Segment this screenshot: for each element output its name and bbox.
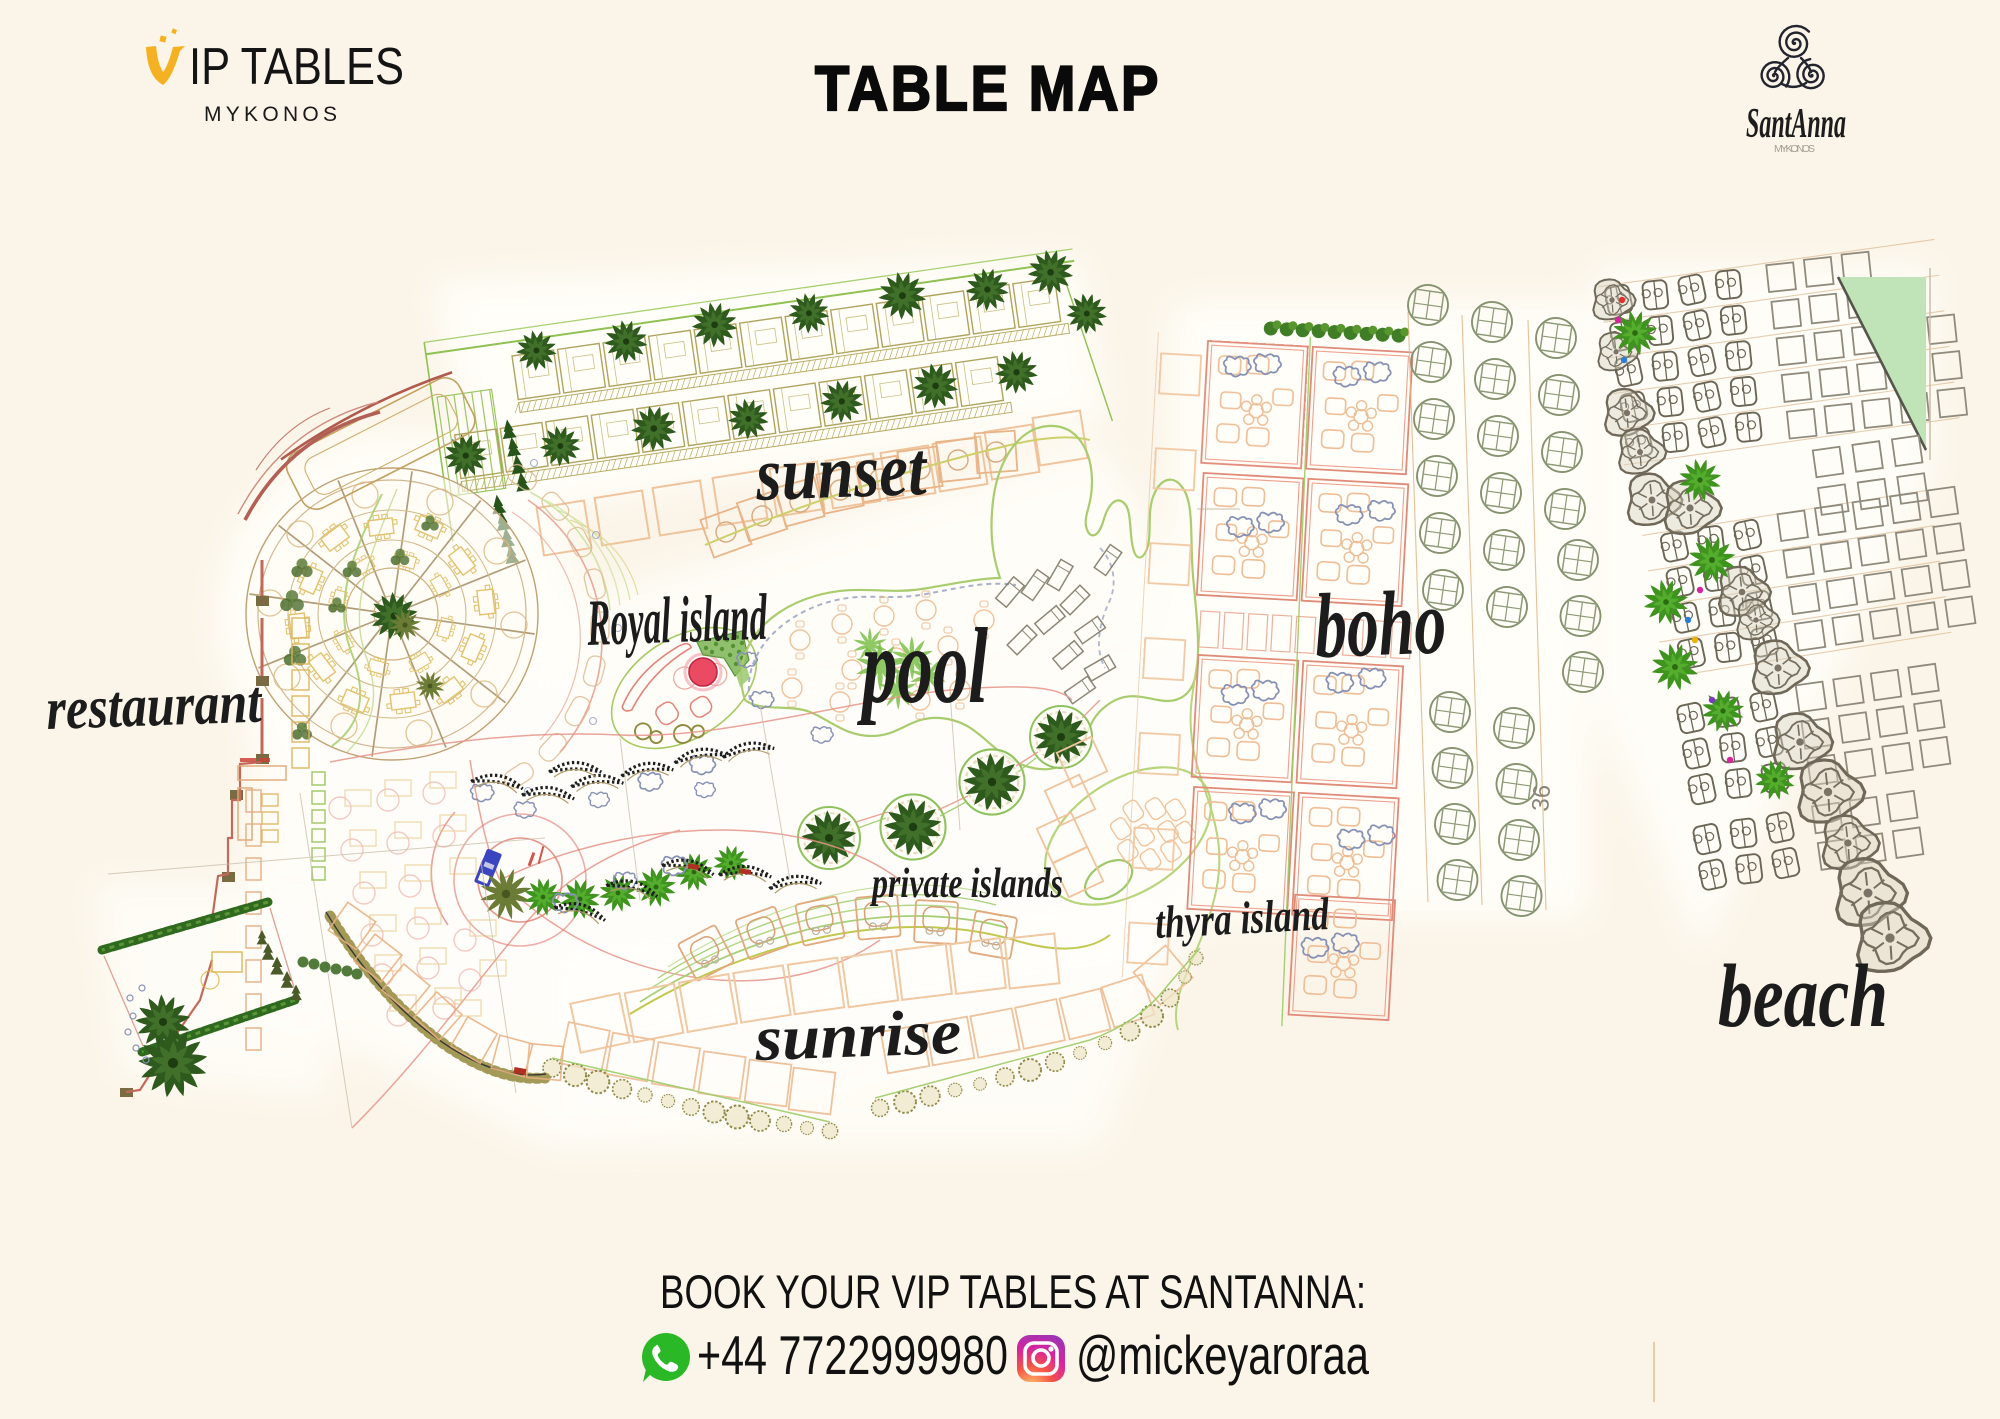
svg-text:+44 7722999980: +44 7722999980 (697, 1324, 1008, 1386)
svg-text:MYKONOS: MYKONOS (204, 103, 346, 126)
svg-text:MYKONOS: MYKONOS (1774, 143, 1818, 155)
svg-text:36: 36 (1527, 784, 1556, 813)
svg-text:sunrise: sunrise (753, 996, 962, 1074)
svg-text:Royal island: Royal island (585, 581, 768, 660)
svg-text:private islands: private islands (870, 861, 1063, 907)
svg-text:IP TABLES: IP TABLES (189, 38, 404, 96)
svg-text:TABLE MAP: TABLE MAP (815, 54, 1161, 124)
svg-text:boho: boho (1313, 570, 1447, 677)
svg-text:@mickeyaroraa: @mickeyaroraa (1076, 1324, 1369, 1386)
svg-text:restaurant: restaurant (45, 668, 264, 742)
svg-text:BOOK YOUR VIP TABLES AT SANTAN: BOOK YOUR VIP TABLES AT SANTANNA: (660, 1265, 1366, 1318)
svg-text:sunset: sunset (754, 427, 930, 517)
svg-text:SantAnna: SantAnna (1746, 101, 1846, 147)
svg-text:thyra island: thyra island (1154, 888, 1331, 948)
svg-text:beach: beach (1718, 947, 1888, 1046)
svg-text:pool: pool (857, 607, 988, 726)
